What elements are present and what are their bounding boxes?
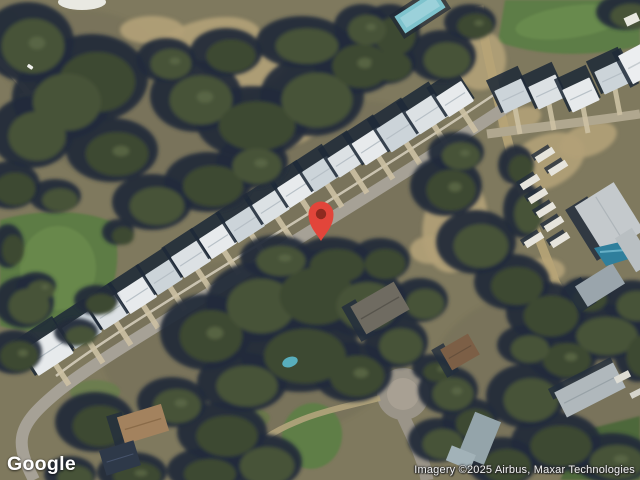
map-attribution: Imagery ©2025 Airbus, Maxar Technologies: [414, 464, 635, 476]
google-logo[interactable]: Google: [7, 453, 76, 476]
satellite-map[interactable]: [0, 0, 640, 480]
google-maps-satellite-view: Google Imagery ©2025 Airbus, Maxar Techn…: [0, 0, 640, 480]
